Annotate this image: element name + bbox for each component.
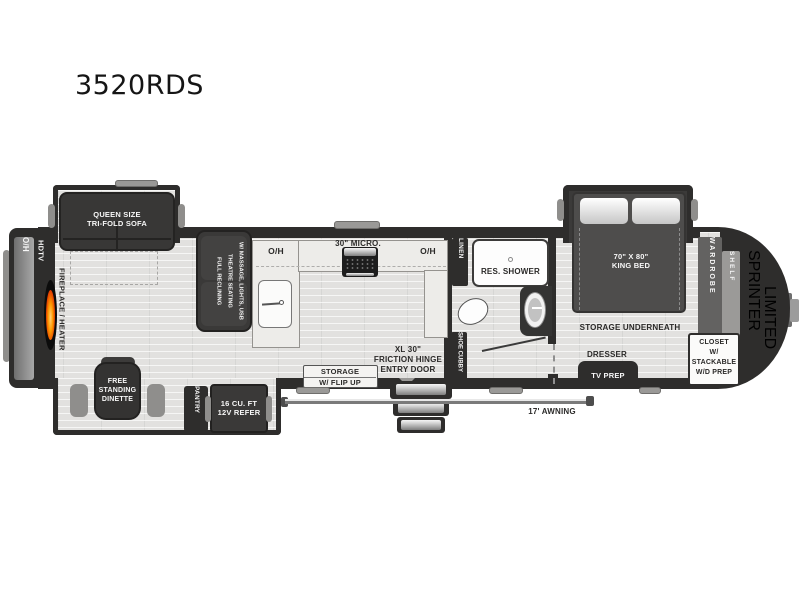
underbody-nub (296, 387, 330, 394)
awning (285, 399, 590, 404)
shelf-label: SHELF (727, 251, 735, 341)
range-grill-icon (345, 258, 375, 271)
linen-label: LINEN (456, 238, 464, 286)
microwave-door (344, 248, 376, 256)
tv-prep-label: TV PREP (578, 371, 638, 380)
pillow (580, 198, 628, 224)
sofa-seat-seam (63, 238, 171, 240)
queen-sofa: QUEEN SIZE TRI-FOLD SOFA (59, 192, 175, 251)
range-handle (346, 273, 374, 276)
rear-overhead-cabinet: O/H (14, 237, 34, 380)
wardrobe-label: WARDROBE (706, 237, 715, 343)
hitch-pin-tip (790, 299, 799, 322)
pillow (632, 198, 680, 224)
shelf: SHELF (722, 251, 740, 341)
entry-step-frame (390, 381, 452, 399)
dinette-label: FREE STANDING DINETTE (96, 378, 139, 404)
awning-label: 17' AWNING (512, 407, 592, 417)
entry-door-label: XL 30" FRICTION HINGE ENTRY DOOR (363, 345, 453, 375)
slide-handle (178, 204, 185, 228)
linen-cabinet: LINEN (452, 238, 468, 286)
kitchen-oh-right-label: O/H (406, 246, 450, 257)
shower: RES. SHOWER (472, 239, 549, 287)
slide-handle (557, 199, 564, 221)
shoe-cubby-label: SHOE CUBBY (455, 332, 463, 389)
faucet-base-icon (279, 300, 284, 305)
range-microwave (342, 247, 378, 277)
shower-drain-icon (508, 257, 513, 262)
entry-step-tread (396, 384, 446, 395)
flame-icon (46, 290, 55, 340)
bed-outline-dash (579, 228, 580, 310)
entry-step-tread (398, 403, 444, 413)
kitchen-oh-left-label: O/H (252, 246, 300, 257)
theatre-seating: FULL RECLINING THEATRE SEATING W/ MASSAG… (196, 230, 252, 332)
dinette-chair (70, 384, 88, 417)
tv-prep-cabinet: TV PREP (578, 361, 638, 388)
kitchen-counter-right (424, 270, 448, 338)
refer-label: 16 CU. FT 12V REFER (212, 399, 266, 418)
underbody-nub (489, 387, 523, 394)
bedroom-step-line (553, 344, 555, 384)
dresser-label: DRESSER (567, 350, 647, 360)
king-bed: 70" X 80" KING BED (572, 192, 686, 313)
model-title: 3520RDS (75, 70, 204, 101)
vanity-sink-bowl (528, 298, 542, 322)
slide-roof-nub (115, 180, 158, 187)
wardrobe: WARDROBE (698, 237, 722, 343)
shower-label: RES. SHOWER (474, 267, 547, 277)
dinette-table: FREE STANDING DINETTE (94, 362, 141, 420)
closet-label: CLOSET W/ STACKABLE W/D PREP (690, 338, 738, 379)
pantry-label: PANTRY (192, 386, 200, 432)
sofa-footprint-outline (70, 251, 158, 285)
underbody-nub (639, 387, 661, 394)
slide-handle (691, 199, 698, 221)
slide-handle (266, 396, 272, 422)
fireplace-label: FIREPLACE / HEATER (57, 268, 66, 364)
entry-step-tread (401, 420, 441, 430)
vanity (520, 286, 552, 336)
kitchen-sink (258, 280, 292, 328)
shoe-cubby: SHOE CUBBY (451, 332, 467, 389)
storage-flip-sub: W/ FLIP UP (304, 378, 376, 387)
rear-overhead-label: O/H (20, 237, 30, 380)
brand-sub-logo: LIMITED (760, 286, 778, 320)
dinette-chair (147, 384, 165, 417)
slide-handle (48, 204, 55, 228)
sofa-label: QUEEN SIZE TRI-FOLD SOFA (64, 210, 170, 229)
slide-handle (205, 396, 211, 422)
awning-bracket (586, 396, 594, 406)
floorplan-canvas: 3520RDS O/H HDTV FIREPLACE / HEATER LINE… (0, 0, 800, 600)
refrigerator: 16 CU. FT 12V REFER (210, 384, 268, 433)
theatre-label: FULL RECLINING THEATRE SEATING W/ MASSAG… (212, 232, 246, 330)
storage-underneath-label: STORAGE UNDERNEATH (575, 323, 685, 333)
faucet-arm-icon (262, 302, 280, 305)
washer-dryer-closet: CLOSET W/ STACKABLE W/D PREP (688, 333, 740, 386)
roof-vent-nub (334, 221, 380, 229)
entry-step-frame (397, 417, 445, 433)
king-bed-label: 70" X 80" KING BED (581, 252, 681, 271)
faucet-icon (532, 307, 542, 309)
